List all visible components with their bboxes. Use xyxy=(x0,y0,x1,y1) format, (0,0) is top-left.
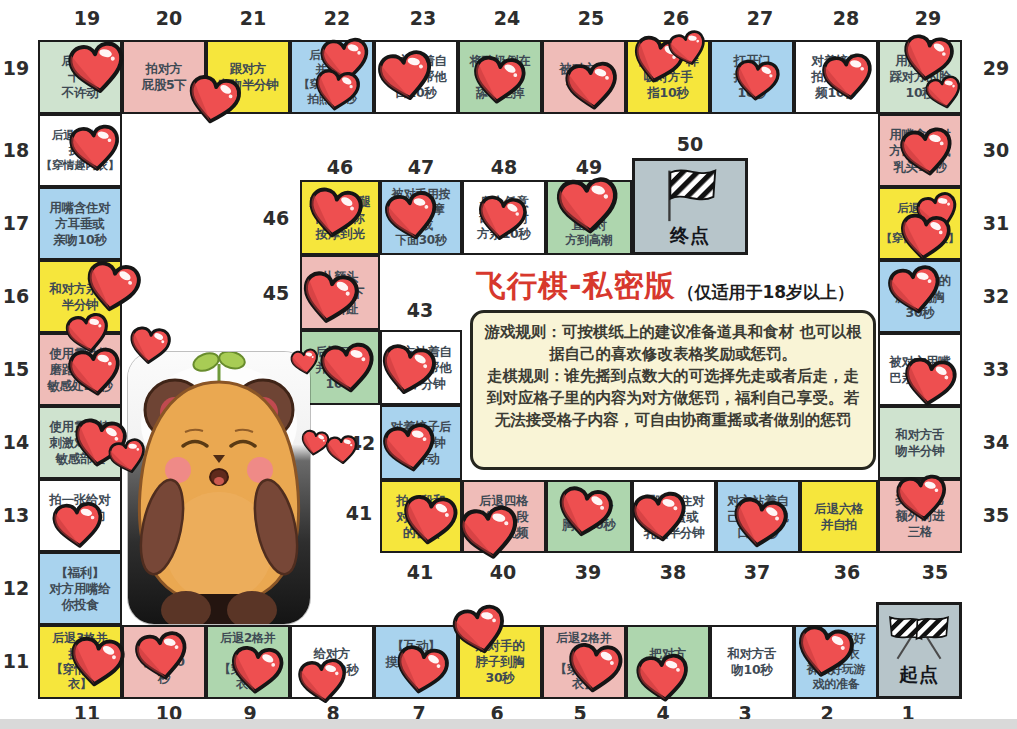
cell-number-label: 14 xyxy=(3,431,29,453)
cell-task-text: 后退四格 xyxy=(898,201,943,216)
cell-task-text: 下面30秒 xyxy=(395,233,446,248)
cell-task-text: 吸对方手 xyxy=(644,69,693,85)
cell-task-text: 换上 xyxy=(236,647,259,662)
cell-task-text: 对方亲吻 xyxy=(397,509,446,525)
cell-task-text: 【穿情趣衣】 xyxy=(298,77,365,92)
cell-task-text: 不许动 xyxy=(62,85,99,101)
cell-task-text: 后退2格并 xyxy=(557,631,612,646)
board-cell-38: 用嘴含住对方蛋蛋或乳头半分钟 xyxy=(632,480,716,553)
cell-number-label: 29 xyxy=(915,7,941,29)
cell-task-text: 用嘴含住对 xyxy=(643,493,704,509)
board-cell-4: 把对方弄到湿 xyxy=(626,625,710,699)
cell-task-text: 并亲对方 xyxy=(316,360,365,376)
board-cell-48: 身上任意部位给对方亲10秒 xyxy=(462,180,546,255)
cell-task-text: 摩器按摩 xyxy=(398,202,445,217)
board-cell-33: 被对方用嘴巴亲遍全身 xyxy=(878,333,962,406)
cell-number-label: 11 xyxy=(3,650,29,672)
cell-number-label: 36 xyxy=(834,561,860,583)
cell-task-text: 从额头 xyxy=(322,269,359,285)
cell-task-text: 己 xyxy=(410,670,422,686)
board-cell-42: 对着镜子后入一分钟不许动 xyxy=(380,405,462,480)
cell-task-text: 额外前进 xyxy=(896,508,945,524)
finish-label: 终点 xyxy=(670,223,710,247)
cell-task-text: 脖子到胸 xyxy=(476,654,525,670)
board-cell-17: 用嘴含住对方耳垂或亲吻10秒 xyxy=(38,187,122,260)
cell-task-text: 方的蛋蛋或 xyxy=(889,143,950,159)
cell-task-text: 后入式 xyxy=(62,53,99,69)
cell-task-text: 使用玩具 xyxy=(566,187,613,202)
cell-number-label: 34 xyxy=(983,431,1009,453)
cell-number-label: 23 xyxy=(410,7,436,29)
board-cell-36: 后退六格并自拍 xyxy=(800,480,878,553)
board-cell-2: 洗好澡穿好情趣内衣裤做好玩游戏的准备 xyxy=(794,625,878,699)
rules-box: 游戏规则：可按棋纸上的建议准备道具和食材 也可以根据自己的喜欢修改表格奖励或惩罚… xyxy=(470,310,876,470)
cell-task-text: 敏感部位 xyxy=(56,451,105,467)
cell-task-text: 后退六格 xyxy=(815,501,864,517)
board-cell-6: 亲对手的脖子到胸30秒 xyxy=(458,625,542,699)
cell-task-text: 用嘴含住对 xyxy=(889,127,950,143)
cell-task-text: 拍一张给对 xyxy=(49,492,110,508)
board-cell-46: 对手的大腿内侧给你按摩到光 xyxy=(300,180,380,255)
cell-task-text: 巴亲遍全身 xyxy=(889,370,950,386)
board-cell-39: 揉捏对方胸部10秒 xyxy=(546,480,632,553)
cell-number-label: 33 xyxy=(983,358,1009,380)
cell-task-text: 不许动 xyxy=(403,451,440,467)
board-cell-11: 后退3格并换上【穿情趣内衣】 xyxy=(38,625,122,699)
board-cell-12: 【福利】对方用嘴给你投食 xyxy=(38,552,122,625)
cell-number-label: 18 xyxy=(3,139,29,161)
cell-task-text: 己跪着帮他 xyxy=(390,360,451,376)
board-cell-40: 后退四格并拍一段亲吻视频 xyxy=(462,480,546,553)
board-cell-47: 被对手用按摩器按摩胸或下面30秒 xyxy=(380,180,462,255)
board-cell-28: 对着镜子拍亲吻视频10秒 xyxy=(794,40,878,114)
board-cell-41: 拍一段和对方亲吻的视频 xyxy=(380,480,462,553)
cell-number-label: 45 xyxy=(263,282,289,304)
page-edge xyxy=(0,719,1017,729)
cell-task-text: 直到对 xyxy=(571,218,606,233)
cell-task-text: 10下 xyxy=(326,376,355,392)
cell-task-text: 亲吻10秒 xyxy=(53,232,106,248)
board-cell-30: 用嘴含住对方的蛋蛋或乳头10秒 xyxy=(878,114,962,187)
cell-task-text: 按摩30秒 xyxy=(305,662,358,678)
cell-task-text: 吻半分钟 xyxy=(896,443,945,459)
cell-number-label: 32 xyxy=(983,285,1009,307)
cell-task-text: 被对方用嘴 xyxy=(889,354,950,370)
cell-task-text: 胸部10秒 xyxy=(562,517,615,533)
cell-number-label: 17 xyxy=(3,212,29,234)
cell-task-text: 对方用嘴给 xyxy=(49,581,110,597)
start-cell: 起点 xyxy=(876,602,962,699)
cell-task-text: 【穿情趣内衣】 xyxy=(881,231,959,246)
board-cell-29: 用脚轻轻踩对方的脸10秒 xyxy=(878,40,962,114)
cell-task-text: 情趣内衣 xyxy=(813,647,860,662)
cell-task-text: 亲对手的 xyxy=(476,638,525,654)
cell-task-text: 使用震动棒 xyxy=(49,419,110,435)
cell-number-label: 35 xyxy=(983,504,1009,526)
title-age-note: （仅适用于18岁以上） xyxy=(677,281,854,307)
cell-number-label: 47 xyxy=(408,156,434,178)
cell-task-text: 被对手用按 xyxy=(392,187,451,202)
cell-number-label: 41 xyxy=(407,561,433,583)
cell-number-label: 30 xyxy=(983,139,1009,161)
finish-cell: 终点 xyxy=(632,158,748,255)
cell-task-text: 拍亲吻视 xyxy=(812,69,861,85)
board-cell-9: 后退2格并换上【穿情趣内衣】 xyxy=(206,625,290,699)
cell-number-label: 40 xyxy=(490,561,516,583)
cell-task-text: 后退3格并 xyxy=(53,631,108,646)
cell-number-label: 37 xyxy=(744,561,770,583)
cell-task-text: 10秒 xyxy=(738,85,767,101)
cell-number-label: 46 xyxy=(263,207,289,229)
board-cell-21: 跟对方亲吻半分钟 xyxy=(206,40,290,114)
cell-task-text: 方亲10秒 xyxy=(477,226,530,242)
cell-task-text: 后退四格 xyxy=(480,493,529,509)
board-cell-37: 对方站着自己跪着帮他口10秒 xyxy=(716,480,800,553)
cell-task-text: 大腿20 xyxy=(143,654,184,670)
cell-number-label: 26 xyxy=(663,7,689,29)
cell-number-label: 43 xyxy=(407,299,433,321)
page-title: 飞行棋-私密版 （仅适用于18岁以上） xyxy=(476,266,854,307)
board-cell-16: 和对方亲亲半分钟 xyxy=(38,260,122,333)
board-cell-14: 使用震动棒刺激对方的敏感部位 xyxy=(38,406,122,479)
cell-task-text: 10秒 xyxy=(906,85,935,101)
cell-number-label: 21 xyxy=(240,7,266,29)
cell-task-text: 舔着吃掉 xyxy=(476,85,525,101)
cell-task-text: 并换上 xyxy=(903,216,937,231)
cell-task-text: 后退2格并 xyxy=(221,631,276,646)
cell-task-text: 【穿情趣内 xyxy=(555,662,614,677)
cell-task-text: 秒 xyxy=(158,670,170,686)
cell-task-text: 对方站着自 xyxy=(390,344,451,360)
cell-number-label: 48 xyxy=(491,156,517,178)
board-cell-49: 使用玩具刺激直到对方到高潮 xyxy=(546,180,632,255)
board-cell-27: 打开门抱对方10秒 xyxy=(710,40,794,114)
cell-task-text: 用脚轻轻 xyxy=(896,53,945,69)
cell-task-text: 刺激对方的 xyxy=(49,435,110,451)
cell-number-label: 28 xyxy=(833,7,859,29)
cell-task-text: 【穿情趣内 xyxy=(219,662,278,677)
cell-task-text: 后退二格 xyxy=(316,344,365,360)
cell-task-text: 对手的大腿 xyxy=(309,194,370,210)
board-cell-25: 被对方堵一分钟 xyxy=(542,40,626,114)
board-cell-35: 奖励自己额外前进三格 xyxy=(878,479,962,553)
board-cell-31: 后退四格并换上【穿情趣内衣】 xyxy=(878,187,962,260)
cell-task-text: 使用震动棒 xyxy=(49,346,110,362)
cell-task-text: 并自拍 xyxy=(821,517,858,533)
cell-task-text: 戏的准备 xyxy=(813,677,860,692)
cell-task-text: 敏感处20秒 xyxy=(47,378,113,394)
cell-task-text: 跟对方 xyxy=(230,61,267,77)
cell-number-label: 46 xyxy=(327,156,353,178)
cell-task-text: 裤做好玩游 xyxy=(807,662,866,677)
cell-task-text: 【福利】 xyxy=(56,565,105,581)
cell-task-text: 抱对方 xyxy=(734,69,771,85)
rules-game: 游戏规则：可按棋纸上的建议准备道具和食材 也可以根据自己的喜欢修改表格奖励或惩罚… xyxy=(482,321,864,365)
cell-task-text: 十下 xyxy=(68,69,92,85)
cell-task-text: 己跪着帮他 xyxy=(727,509,788,525)
cell-number-label: 12 xyxy=(3,577,29,599)
cell-task-text: 方看你的 xyxy=(56,508,105,524)
cell-task-text: 半分钟 xyxy=(62,297,99,313)
board-cell-18: 后退一格并换上【穿情趣内衣】 xyxy=(38,114,122,187)
cell-task-text: 和对方亲亲 xyxy=(49,281,110,297)
cell-task-text: 对着镜子 xyxy=(812,53,861,69)
cell-task-text: 亲吻半分钟 xyxy=(217,77,278,93)
board-cell-13: 拍一张给对方看你的照片 xyxy=(38,479,122,552)
cell-task-text: 弄到湿 xyxy=(650,662,687,678)
board-cell-44: 后退二格并亲对方10下 xyxy=(300,330,380,405)
cell-task-text: 口半分钟 xyxy=(397,376,446,392)
cell-task-text: 按摩到光 xyxy=(316,226,365,242)
cell-number-label: 19 xyxy=(74,7,100,29)
cell-task-text: 一分钟 xyxy=(566,77,603,93)
cell-number-label: 41 xyxy=(346,502,372,524)
cell-task-text: 【互动】 xyxy=(392,638,441,654)
cell-task-text: 身上任意 xyxy=(480,194,529,210)
cell-task-text: 亲吻视频 xyxy=(480,525,529,541)
board-cell-10: 亲对方大腿20秒 xyxy=(122,625,206,699)
cell-number-label: 29 xyxy=(983,57,1009,79)
board-cell-7: 【互动】摸对方摸自己 xyxy=(374,625,458,699)
board-cell-5: 后退2格并换上【穿情趣内衣】 xyxy=(542,625,626,699)
cell-task-text: 乳头上 xyxy=(482,69,519,85)
cell-task-text: 脖子到胸 xyxy=(896,289,945,305)
cell-task-text: 给对方 xyxy=(314,646,351,662)
start-label: 起点 xyxy=(899,662,939,686)
cell-task-text: 磨蹭自己的 xyxy=(49,362,110,378)
cell-task-text: 频10秒 xyxy=(815,85,856,101)
cell-task-text: 胸或 xyxy=(409,218,432,233)
cell-task-text: 对方站着自 xyxy=(727,493,788,509)
cell-task-text: 换上 xyxy=(69,143,91,158)
cell-number-label: 50 xyxy=(677,133,703,155)
cell-task-text: 对方站着自 xyxy=(385,53,446,69)
cell-task-text: 把对方 xyxy=(650,646,687,662)
cell-task-text: 方蛋蛋或 xyxy=(650,509,699,525)
cell-task-text: 拍一段和 xyxy=(397,493,446,509)
cell-task-text: 和对方舌 xyxy=(728,646,777,662)
cell-task-text: 打开门 xyxy=(734,53,771,69)
cell-task-text: 被对方堵 xyxy=(560,61,609,77)
cell-task-text: 换上 xyxy=(68,647,91,662)
cell-task-text: 【穿情趣内 xyxy=(51,662,110,677)
cell-task-text: 到脚趾 xyxy=(322,301,359,317)
cell-task-text: 踩对方的脸 xyxy=(889,69,950,85)
board-cell-43: 对方站着自己跪着帮他口半分钟 xyxy=(380,330,462,405)
board-cell-20: 拍对方屁股5下 xyxy=(122,40,206,114)
cell-task-text: 衣】 xyxy=(68,677,91,692)
start-flags-icon xyxy=(877,614,961,662)
cell-task-text: 己跪着帮他 xyxy=(385,69,446,85)
bear-illustration xyxy=(128,352,310,624)
finish-flag-icon xyxy=(657,165,723,223)
cell-task-text: 后退六格 xyxy=(310,48,355,63)
cell-task-text: 的视频 xyxy=(403,525,440,541)
cell-task-text: 方耳垂或 xyxy=(56,216,105,232)
cell-task-text: 一路亲下 xyxy=(316,285,365,301)
cell-task-text: 亲吻对方的 xyxy=(889,273,950,289)
cell-task-text: 指10秒 xyxy=(647,85,688,101)
cell-task-text: 部位给对 xyxy=(480,210,529,226)
cell-number-label: 27 xyxy=(747,7,773,29)
cell-number-label: 35 xyxy=(922,561,948,583)
bear-photo xyxy=(128,352,310,624)
cell-task-text: 口10秒 xyxy=(737,525,778,541)
cell-task-text: 像宝宝一样 xyxy=(637,53,698,69)
cell-task-text: 并拍一段 xyxy=(480,509,529,525)
cell-number-label: 20 xyxy=(156,7,182,29)
board-cell-45: 从额头一路亲下到脚趾 xyxy=(300,255,380,330)
cell-task-text: 洗好澡穿好 xyxy=(807,631,866,646)
cell-task-text: 对着镜子后 xyxy=(390,419,451,435)
cell-task-text: 乳头10秒 xyxy=(893,159,946,175)
cell-number-label: 49 xyxy=(576,156,602,178)
cell-task-text: 你投食 xyxy=(62,597,99,613)
cell-number-label: 16 xyxy=(3,285,29,307)
cell-number-label: 31 xyxy=(983,212,1009,234)
cell-task-text: 内侧给你 xyxy=(316,210,365,226)
cell-task-text: 入一分钟 xyxy=(397,435,446,451)
board-cell-3: 和对方舌吻10秒 xyxy=(710,625,794,699)
cell-task-text: 口10秒 xyxy=(395,85,436,101)
cell-task-text: 衣】 xyxy=(236,677,259,692)
cell-task-text: 刺激 xyxy=(577,202,600,217)
cell-task-text: 拍对方 xyxy=(146,61,183,77)
cell-task-text: 并换上 xyxy=(315,62,349,77)
cell-task-text: 拍照10秒 xyxy=(307,92,356,107)
cell-number-label: 15 xyxy=(3,358,29,380)
cell-task-text: 亲对方 xyxy=(146,638,183,654)
cell-number-label: 42 xyxy=(349,432,375,454)
board-cell-15: 使用震动棒磨蹭自己的敏感处20秒 xyxy=(38,333,122,406)
cell-task-text: 30秒 xyxy=(906,305,935,321)
cell-task-text: 用嘴含住对 xyxy=(49,200,110,216)
cell-task-text: 三格 xyxy=(908,524,932,540)
cell-task-text: 乳头半分钟 xyxy=(643,525,704,541)
cell-number-label: 24 xyxy=(494,7,520,29)
cell-number-label: 19 xyxy=(3,57,29,79)
board-cell-19: 后入式十下不许动 xyxy=(38,40,122,114)
cell-task-text: 和对方舌 xyxy=(896,427,945,443)
cell-task-text: 换上 xyxy=(572,647,595,662)
rules-move: 走棋规则：谁先摇到点数大的可选择先走或者后走，走到对应格子里的内容为对方做惩罚，… xyxy=(482,365,864,431)
cell-number-label: 22 xyxy=(324,7,350,29)
cell-task-text: 后退一格并 xyxy=(52,128,108,143)
board-cell-24: 将酸奶倒在乳头上舔着吃掉 xyxy=(458,40,542,114)
cell-task-text: 衣】 xyxy=(572,677,595,692)
cell-task-text: 吻10秒 xyxy=(731,662,772,678)
board-cell-22: 后退六格并换上【穿情趣衣】拍照10秒 xyxy=(290,40,374,114)
cell-task-text: 照片 xyxy=(68,524,92,540)
cell-task-text: 揉捏对方 xyxy=(565,501,614,517)
cell-task-text: 【穿情趣内衣】 xyxy=(41,158,119,173)
cell-task-text: 奖励自己 xyxy=(896,492,945,508)
board-cell-26: 像宝宝一样吸对方手指10秒 xyxy=(626,40,710,114)
cell-number-label: 38 xyxy=(660,561,686,583)
cell-number-label: 25 xyxy=(578,7,604,29)
cell-task-text: 方到高潮 xyxy=(566,233,613,248)
board-cell-8: 给对方按摩30秒 xyxy=(290,625,374,699)
cell-task-text: 30秒 xyxy=(486,670,515,686)
title-main: 飞行棋-私密版 xyxy=(476,266,675,307)
cell-number-label: 39 xyxy=(575,561,601,583)
board-cell-32: 亲吻对方的脖子到胸30秒 xyxy=(878,260,962,333)
cell-task-text: 摸对方摸自 xyxy=(385,654,446,670)
board-cell-34: 和对方舌吻半分钟 xyxy=(878,406,962,479)
cell-number-label: 13 xyxy=(3,504,29,526)
cell-task-text: 屁股5下 xyxy=(142,77,187,93)
cell-task-text: 将酸奶倒在 xyxy=(469,53,530,69)
board-cell-23: 对方站着自己跪着帮他口10秒 xyxy=(374,40,458,114)
